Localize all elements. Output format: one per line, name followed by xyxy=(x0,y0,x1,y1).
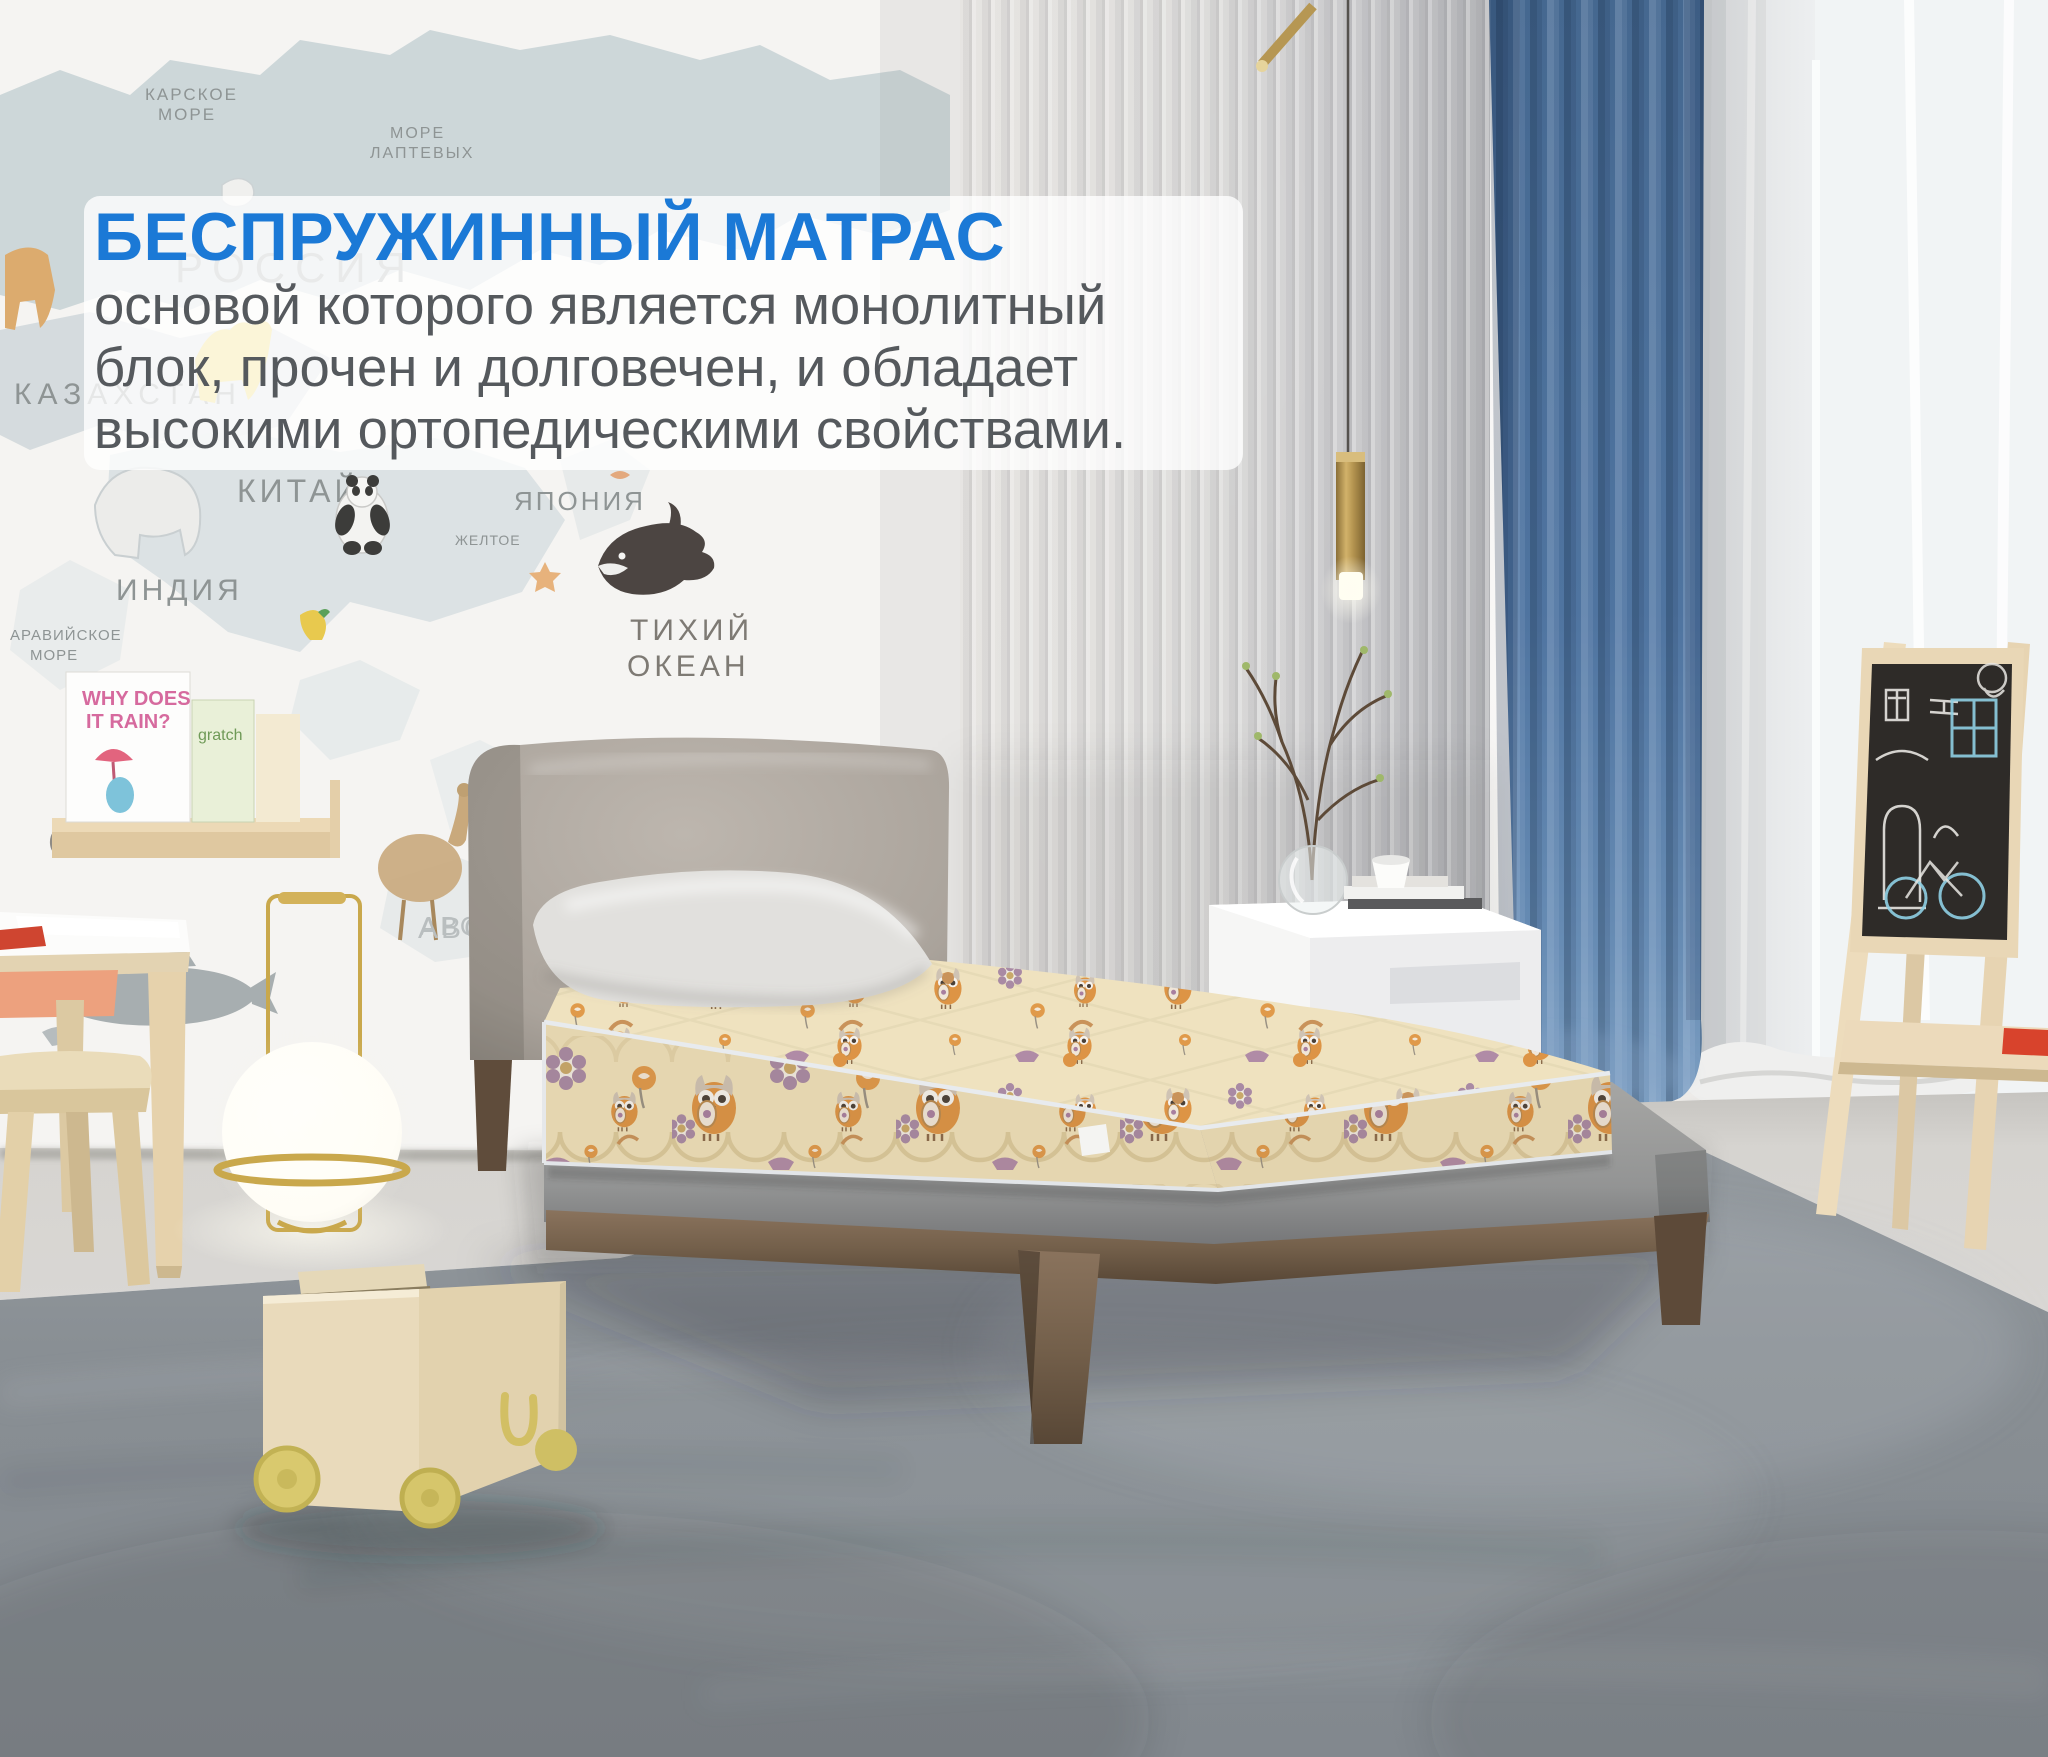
svg-text:КАРСКОЕ: КАРСКОЕ xyxy=(145,85,238,104)
svg-text:МОРЕ: МОРЕ xyxy=(158,105,216,124)
svg-text:ЖЕЛТОЕ: ЖЕЛТОЕ xyxy=(455,532,521,548)
svg-text:основой которого является моно: основой которого является монолитный xyxy=(94,275,1106,336)
svg-text:МОРЕ: МОРЕ xyxy=(30,647,78,664)
svg-text:АРАВИЙСКОЕ: АРАВИЙСКОЕ xyxy=(10,626,122,644)
svg-text:ОКЕАН: ОКЕАН xyxy=(627,650,750,683)
svg-text:высокими ортопедическими свойс: высокими ортопедическими свойствами. xyxy=(94,399,1126,460)
svg-text:WHY DOES: WHY DOES xyxy=(82,688,191,710)
svg-text:МОРЕ: МОРЕ xyxy=(390,125,445,142)
svg-text:ЯПОНИЯ: ЯПОНИЯ xyxy=(514,486,646,516)
svg-text:IT RAIN?: IT RAIN? xyxy=(86,711,170,733)
svg-text:блок, прочен и долговечен, и о: блок, прочен и долговечен, и обладает xyxy=(94,337,1078,398)
svg-text:ИНДИЯ: ИНДИЯ xyxy=(116,574,243,607)
svg-text:gratch: gratch xyxy=(198,727,242,744)
svg-text:ЛАПТЕВЫХ: ЛАПТЕВЫХ xyxy=(370,145,474,162)
svg-text:ТИХИЙ: ТИХИЙ xyxy=(630,613,753,647)
svg-text:БЕСПРУЖИННЫЙ МАТРАС: БЕСПРУЖИННЫЙ МАТРАС xyxy=(94,198,1005,275)
